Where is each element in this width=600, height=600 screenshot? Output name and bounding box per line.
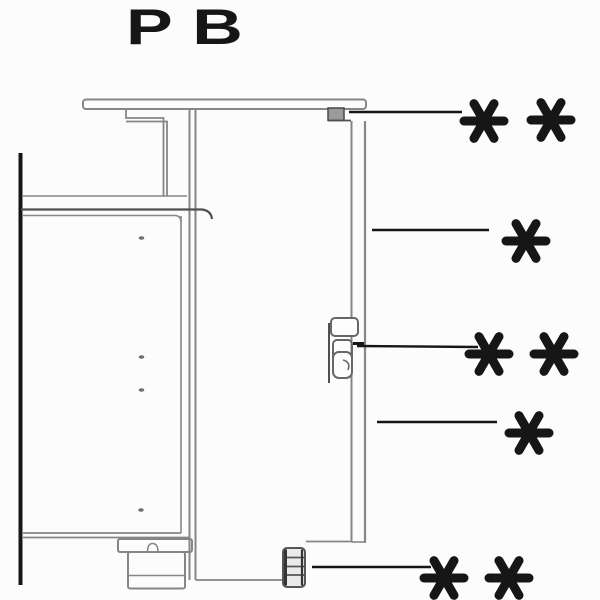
mount-block <box>328 108 344 121</box>
asterisk-icon <box>469 337 509 372</box>
bottom-fitting <box>283 548 305 587</box>
diagram-stage: PB <box>0 0 600 600</box>
foot-top-plate <box>118 539 192 552</box>
top-rail-lower <box>23 216 181 223</box>
asterisk-icon <box>464 104 504 139</box>
foot-body <box>128 552 185 589</box>
foot-plate-notch <box>148 544 159 553</box>
shelf-pin-hole <box>139 355 145 359</box>
callout-door-lower <box>377 416 549 451</box>
plinth-foot <box>118 539 284 589</box>
top-rail-dark <box>21 210 212 220</box>
callout-bottom-fitting <box>312 561 529 596</box>
cabinet-carcass <box>21 196 212 538</box>
asterisk-icon <box>509 416 549 451</box>
shelf-pin-hole <box>139 236 145 240</box>
support-inner-contour <box>126 122 167 197</box>
asterisk-icon <box>534 337 574 372</box>
cabinet-cross-section-diagram <box>0 0 600 600</box>
asterisk-icon <box>489 561 529 596</box>
asterisk-icon <box>531 103 571 138</box>
shelf-pin-hole <box>139 388 145 392</box>
cabinet-side-panel <box>190 109 196 580</box>
callout-top-mount <box>349 103 571 139</box>
leader-line <box>357 346 478 347</box>
callout-door-upper <box>372 224 546 259</box>
countertop <box>83 100 366 110</box>
mid-mount-bracket <box>329 318 364 383</box>
counter-support-bracket <box>126 109 167 196</box>
bracket-top-cap <box>331 318 358 336</box>
asterisk-icon <box>506 224 546 259</box>
callout-mid-bracket <box>357 337 574 372</box>
countertop-slab <box>83 100 366 110</box>
shelf-pin-hole <box>138 508 144 512</box>
